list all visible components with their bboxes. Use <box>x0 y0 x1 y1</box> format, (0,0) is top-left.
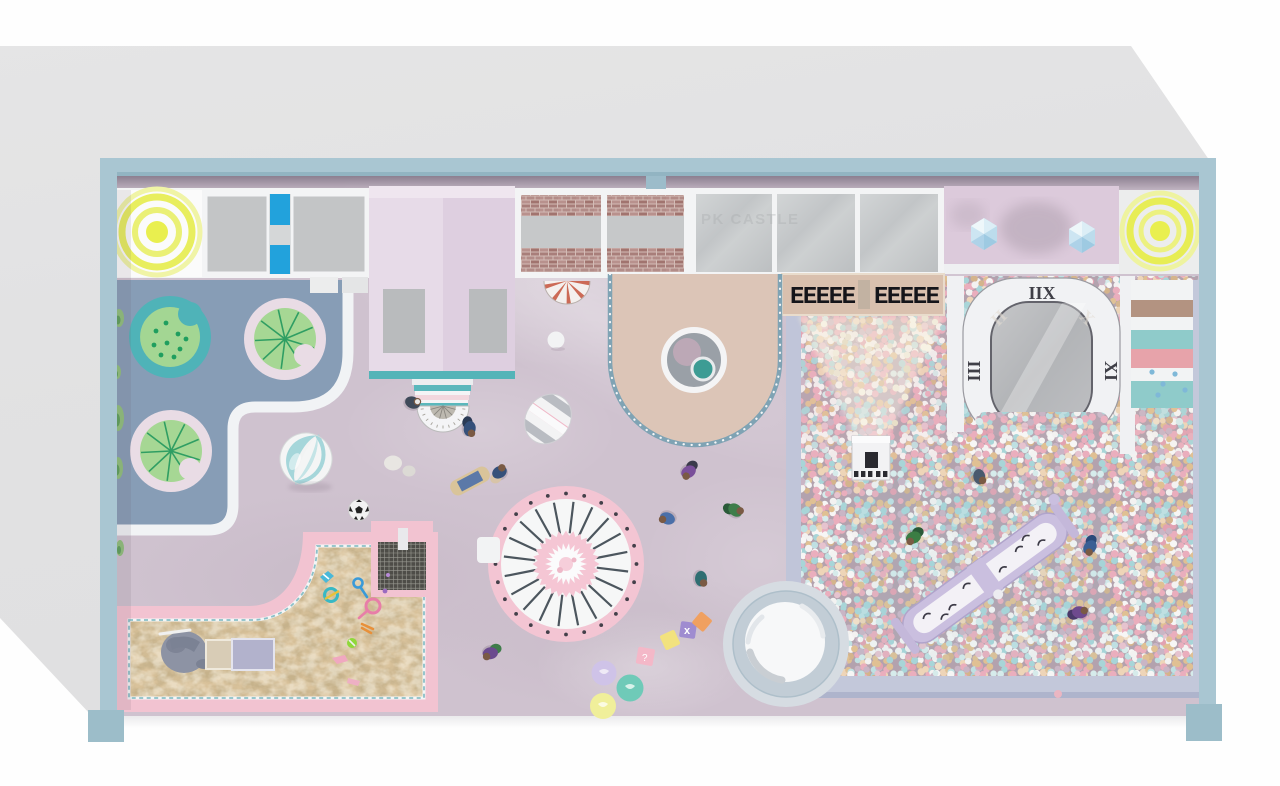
svg-text:PK CASTLE: PK CASTLE <box>701 211 800 228</box>
svg-text:EEEEE: EEEEE <box>874 284 940 311</box>
svg-text:EEEEE: EEEEE <box>790 284 856 311</box>
svg-text:?: ? <box>642 653 648 664</box>
svg-text:IIX: IIX <box>1028 283 1055 303</box>
svg-text:XI: XI <box>1101 361 1121 381</box>
svg-text:x: x <box>684 625 691 637</box>
svg-text:III: III <box>964 360 984 381</box>
